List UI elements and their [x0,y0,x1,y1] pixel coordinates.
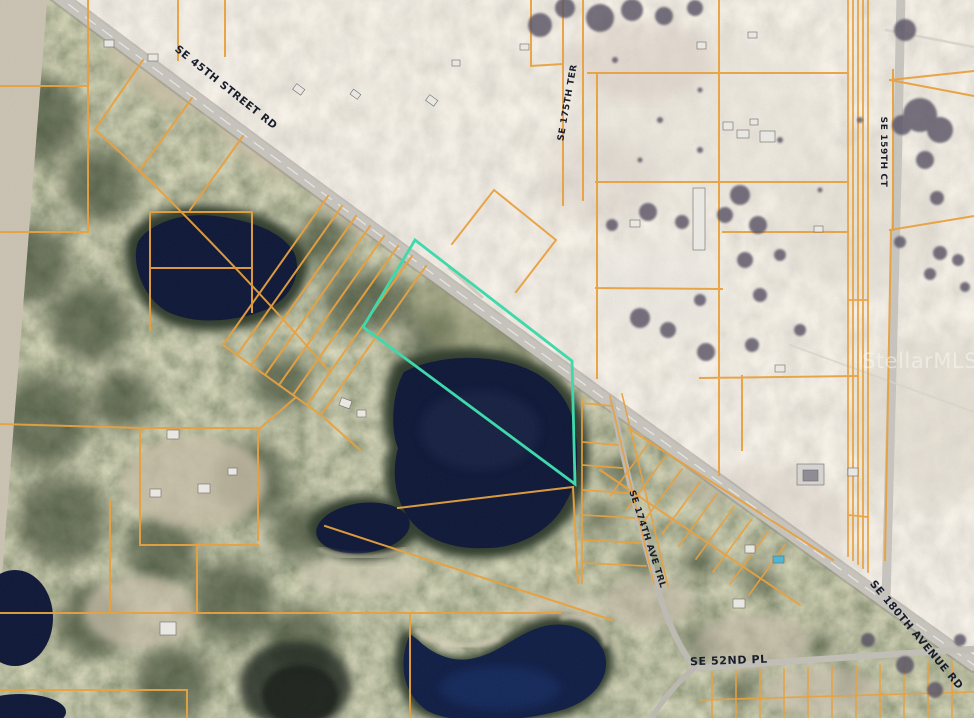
photo-grain-2 [0,0,974,718]
aerial-parcel-map[interactable]: SE 45TH STREET RD SE 180TH AVENUE RD SE … [0,0,974,718]
map-canvas[interactable]: SE 45TH STREET RD SE 180TH AVENUE RD SE … [0,0,974,718]
